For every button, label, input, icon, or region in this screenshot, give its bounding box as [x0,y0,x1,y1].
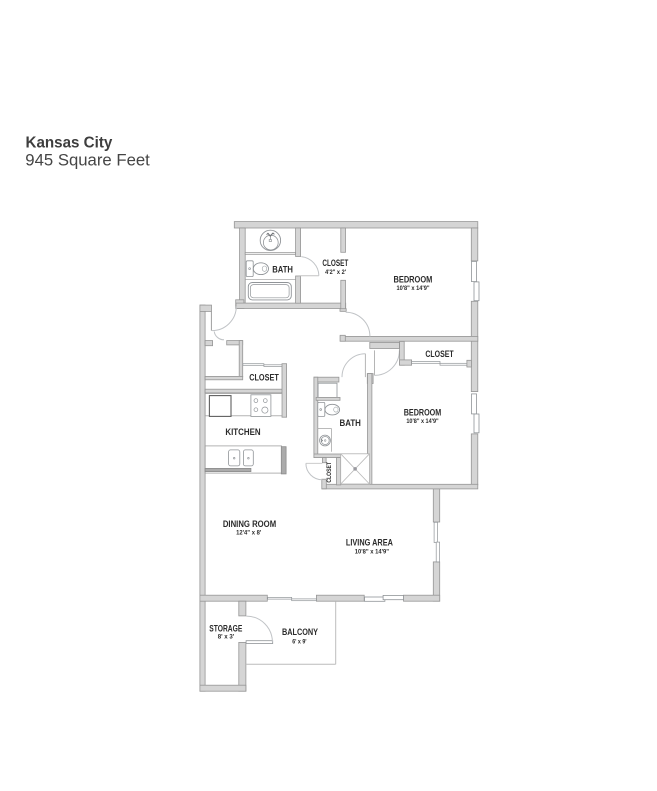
svg-text:BATH: BATH [340,418,361,428]
svg-text:CLOSET: CLOSET [425,349,454,359]
svg-text:10'8" x 14'9": 10'8" x 14'9" [396,285,429,292]
svg-text:BALCONY: BALCONY [282,626,319,637]
svg-text:CLOSET: CLOSET [322,258,348,268]
svg-text:10'8" x 14'9": 10'8" x 14'9" [355,548,389,555]
svg-text:8' x 3': 8' x 3' [218,634,235,641]
svg-text:DINING ROOM: DINING ROOM [223,518,276,529]
svg-text:945 Square Feet: 945 Square Feet [25,151,150,169]
svg-text:4'2" x 2': 4'2" x 2' [325,269,346,276]
svg-text:STORAGE: STORAGE [209,622,242,633]
svg-text:12'4" x 8': 12'4" x 8' [236,530,262,537]
svg-text:BATH: BATH [272,263,293,274]
svg-text:Kansas City: Kansas City [26,134,113,151]
svg-text:CLOSET: CLOSET [326,462,333,483]
svg-text:BEDROOM: BEDROOM [394,273,433,284]
svg-text:LIVING AREA: LIVING AREA [346,537,393,548]
svg-text:KITCHEN: KITCHEN [225,426,260,437]
svg-text:BEDROOM: BEDROOM [404,406,442,417]
svg-text:10'8" x 14'9": 10'8" x 14'9" [406,418,438,425]
svg-text:CLOSET: CLOSET [249,372,279,382]
svg-text:6' x 9': 6' x 9' [292,639,307,646]
